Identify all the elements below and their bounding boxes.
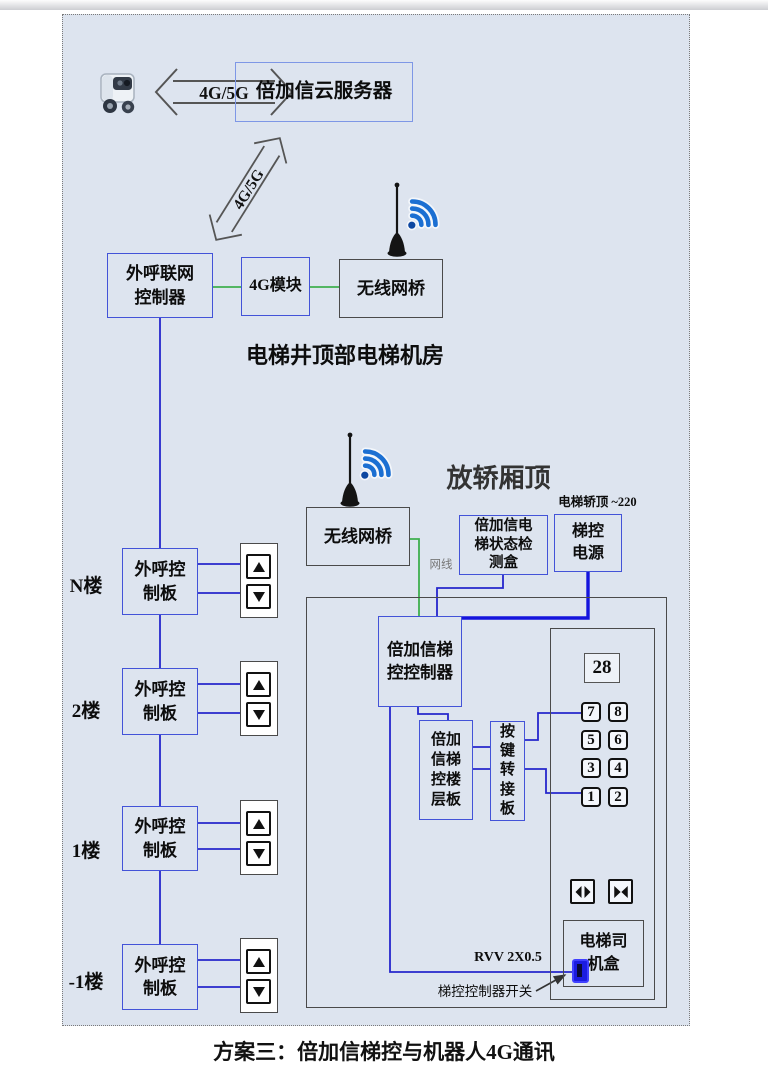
floor-display: 28 [584, 653, 620, 683]
cop-button-label: 2 [614, 789, 622, 806]
tc-controller-box: 倍加信梯控控制器 [378, 616, 462, 707]
floor-board-box: 倍加信梯控楼层板 [419, 720, 473, 820]
call-board-box-1: 外呼控制板 [122, 806, 198, 871]
floor-label-1: 1楼 [58, 836, 114, 863]
car-top-power-note: 电梯轿顶 ~220 [545, 491, 650, 510]
cop-button-5: 5 [581, 730, 601, 750]
key-adapter-label: 按键转接板 [499, 723, 516, 819]
cop-button-label: 3 [587, 760, 595, 777]
car-top-caption: 放轿厢顶 [436, 458, 561, 495]
controller-switch-label: 梯控控制器开关 [434, 980, 536, 1000]
call-board-box-n: 外呼控制板 [122, 548, 198, 615]
cop-button-label: 6 [614, 732, 622, 749]
hall-button-panel-2 [240, 661, 278, 736]
wireless-bridge-label: 无线网桥 [324, 525, 392, 548]
hall-up-button [246, 672, 271, 697]
rvv-cable-label: RVV 2X0.5 [438, 950, 578, 966]
cloud-server-box: 倍加信云服务器 [235, 62, 413, 122]
floor-label-minus1: -1楼 [58, 967, 114, 994]
floor-display-value: 28 [593, 655, 612, 681]
door-open-icon [574, 883, 592, 901]
down-arrow-icon [253, 592, 265, 602]
machine-room-caption: 电梯井顶部电梯机房 [230, 338, 460, 370]
call-board-box-2: 外呼控制板 [122, 668, 198, 735]
cop-button-7: 7 [581, 702, 601, 722]
call-board-label: 外呼控制板 [132, 954, 188, 1001]
up-arrow-icon [253, 957, 265, 967]
cop-button-label: 4 [614, 760, 622, 777]
call-board-label: 外呼控制板 [132, 558, 188, 605]
wireless-bridge-box-car-top: 无线网桥 [306, 507, 410, 566]
hall-down-button [246, 979, 271, 1004]
hall-up-button [246, 554, 271, 579]
door-open-button [570, 879, 595, 904]
call-board-label: 外呼控制板 [132, 678, 188, 725]
tc-controller-label: 倍加信梯控控制器 [384, 639, 456, 685]
floor-label-n: N楼 [58, 571, 114, 598]
wireless-bridge-box-machine-room: 无线网桥 [339, 259, 443, 318]
ethernet-cable-label: 网线 [424, 556, 458, 572]
antenna-wifi-icon [330, 432, 408, 510]
door-close-icon [612, 883, 630, 901]
cop-button-4: 4 [608, 758, 628, 778]
call-gateway-label: 外呼联网控制器 [123, 262, 197, 309]
door-close-button [608, 879, 633, 904]
cop-button-label: 7 [587, 704, 595, 721]
floor-board-label: 倍加信梯控楼层板 [429, 730, 464, 811]
hall-button-panel-n [240, 543, 278, 618]
call-board-label: 外呼控制板 [132, 815, 188, 862]
call-board-box-minus1: 外呼控制板 [122, 944, 198, 1010]
up-arrow-icon [253, 819, 265, 829]
cop-button-label: 1 [587, 789, 595, 806]
cop-button-8: 8 [608, 702, 628, 722]
4g-module-label: 4G模块 [249, 275, 301, 297]
elevator-status-detector-box: 倍加信电梯状态检测盒 [459, 515, 548, 575]
hall-up-button [246, 811, 271, 836]
hall-button-panel-1 [240, 800, 278, 875]
up-arrow-icon [253, 680, 265, 690]
hall-up-button [246, 949, 271, 974]
controller-switch-icon [572, 959, 589, 983]
elevator-power-box: 梯控电源 [554, 514, 622, 572]
elevator-power-label: 梯控电源 [570, 521, 607, 565]
call-gateway-box: 外呼联网控制器 [107, 253, 213, 318]
floor-label-2: 2楼 [58, 696, 114, 723]
key-adapter-box: 按键转接板 [490, 721, 525, 821]
hall-button-panel-minus1 [240, 938, 278, 1013]
wireless-bridge-label: 无线网桥 [357, 277, 425, 300]
up-arrow-icon [253, 562, 265, 572]
cop-button-1: 1 [581, 787, 601, 807]
down-arrow-icon [253, 710, 265, 720]
4g-module-box: 4G模块 [241, 257, 310, 316]
cop-button-6: 6 [608, 730, 628, 750]
hall-down-button [246, 841, 271, 866]
cloud-server-label: 倍加信云服务器 [256, 79, 393, 106]
robot-icon [96, 66, 142, 116]
antenna-wifi-icon [377, 182, 455, 260]
hall-down-button [246, 702, 271, 727]
cop-button-2: 2 [608, 787, 628, 807]
page: { "colors": { "canvas_bg": "#dde4ef", "b… [0, 0, 768, 1090]
cop-button-label: 8 [614, 704, 622, 721]
status-detector-label: 倍加信电梯状态检测盒 [472, 517, 536, 574]
hall-down-button [246, 584, 271, 609]
down-arrow-icon [253, 987, 265, 997]
down-arrow-icon [253, 849, 265, 859]
cop-button-label: 5 [587, 732, 595, 749]
cop-button-3: 3 [581, 758, 601, 778]
